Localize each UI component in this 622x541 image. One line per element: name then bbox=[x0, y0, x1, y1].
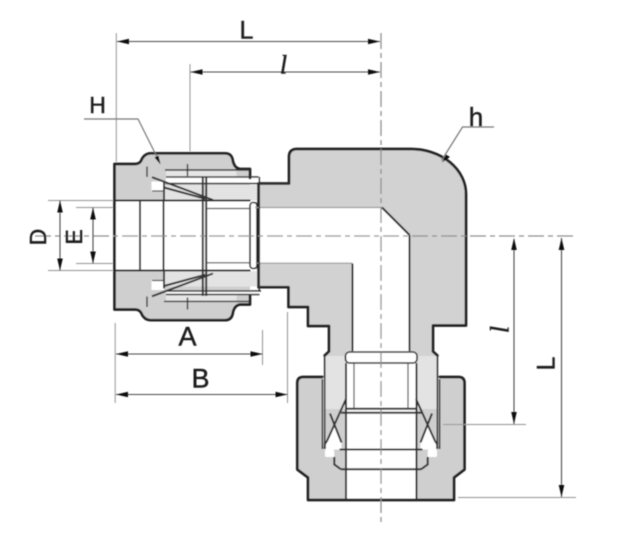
svg-text:E: E bbox=[61, 229, 87, 244]
svg-text:l: l bbox=[486, 326, 515, 333]
svg-text:h: h bbox=[469, 102, 483, 132]
svg-text:D: D bbox=[25, 229, 51, 246]
svg-text:B: B bbox=[191, 364, 209, 394]
svg-text:l: l bbox=[280, 51, 287, 80]
svg-text:L: L bbox=[533, 356, 561, 370]
svg-text:L: L bbox=[240, 17, 254, 45]
svg-text:A: A bbox=[178, 322, 196, 352]
svg-text:H: H bbox=[89, 92, 106, 118]
